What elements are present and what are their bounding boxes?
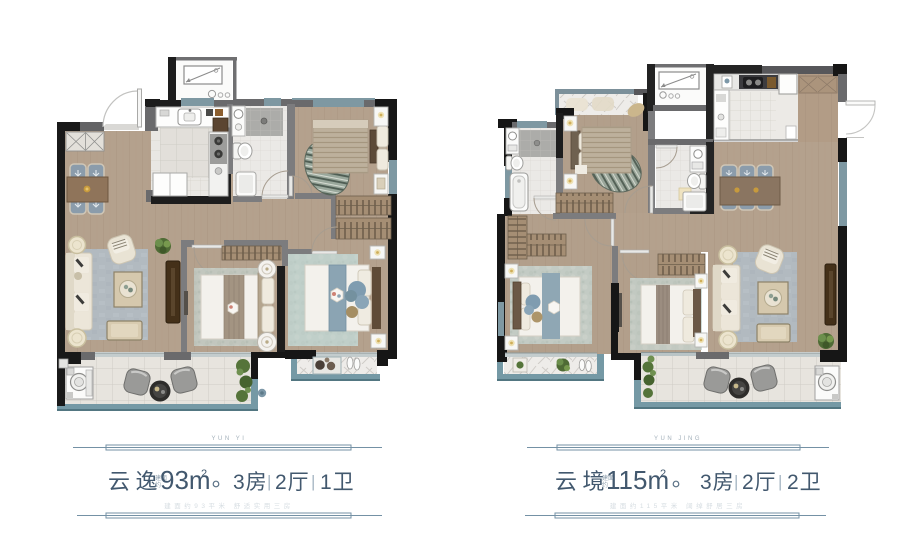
svg-text:|: |: [778, 472, 782, 491]
svg-text:1卫: 1卫: [320, 471, 355, 494]
svg-text:2厅: 2厅: [742, 471, 777, 494]
svg-text:建面约115平米 阔绰舒居三房: 建面约115平米 阔绰舒居三房: [610, 501, 746, 510]
svg-text:YUN JING: YUN JING: [654, 436, 702, 442]
svg-text:2厅: 2厅: [275, 471, 310, 494]
svg-text:建面约93平米 舒适实用三房: 建面约93平米 舒适实用三房: [164, 501, 294, 510]
svg-text:2: 2: [201, 468, 207, 480]
svg-text:2: 2: [660, 468, 666, 480]
svg-text:2卫: 2卫: [787, 471, 822, 494]
svg-text:|: |: [311, 472, 315, 491]
svg-text:|: |: [267, 472, 271, 491]
svg-text:|: |: [734, 472, 738, 491]
svg-text:3房: 3房: [233, 471, 268, 494]
svg-text:3房: 3房: [700, 471, 735, 494]
svg-text:YUN YI: YUN YI: [212, 436, 247, 442]
